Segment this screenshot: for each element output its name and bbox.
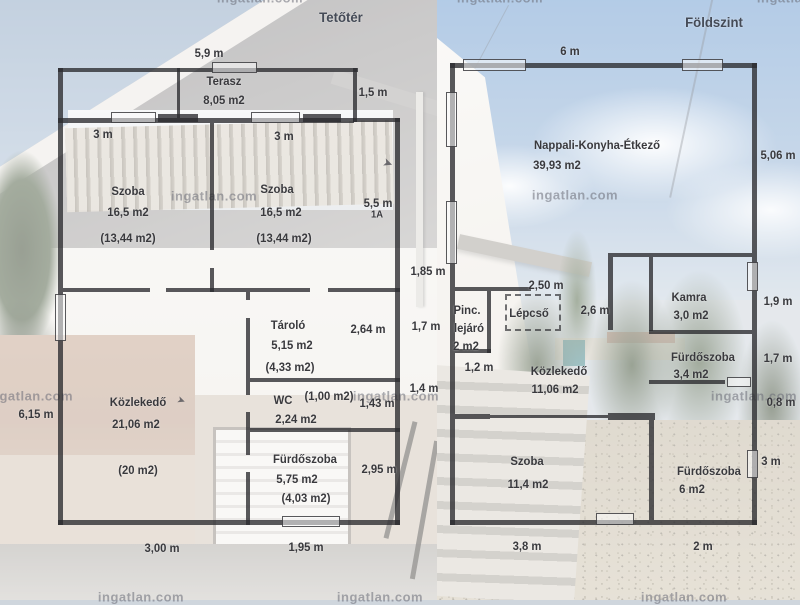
dim-lepcso-right: 2,6 m [581,303,610,317]
dim-bottom-kozlekedo: 3,00 m [144,541,179,555]
window-marker [747,262,758,291]
dim-furdo-height: 2,95 m [361,462,396,476]
room-pinc-line1: Pinc. [454,303,481,317]
dim-left-height: 6,15 m [18,407,53,421]
wall-segment [250,378,400,382]
stair-mark: 1A [371,210,383,221]
room-kamra-name: Kamra [671,290,706,304]
room-pinc-line2: lejáró [454,321,484,335]
room-szoba-left-area: 16,5 m2 [107,205,148,219]
attic-title: Tetőtér [319,9,363,25]
dim-szoba-left-width: 3 m [93,127,112,141]
room-nappali-area: 39,93 m2 [533,158,581,172]
wall-segment [353,68,357,122]
ground-title: Földszint [685,14,743,30]
dim-wc-height: 1,43 m [359,396,394,410]
wall-segment [246,288,310,292]
dim-furdo2-door: 3 m [761,454,780,468]
room-ground-szoba-name: Szoba [510,454,543,468]
wall-segment [210,123,214,250]
dim-left-2: 1,7 m [412,319,441,333]
room-furdoszoba-net: (4,03 m2) [282,491,331,505]
wall-segment [63,288,150,292]
watermark: ingatlan.com [457,0,543,6]
watermark: ingatlan.com [641,590,727,605]
dim-bottom-szoba: 3,8 m [513,539,542,553]
watermark: ingatlan.com [171,189,257,204]
window-marker [446,201,457,264]
wall-segment [455,287,531,291]
dim-left-1: 1,85 m [410,264,445,278]
window-marker [682,59,723,71]
dim-wall-segment: 0,8 m [767,395,796,409]
door-marker [747,450,758,478]
wall-segment [246,318,250,395]
room-kozlekedo-area: 21,06 m2 [112,417,160,431]
dim-bottom-furdo: 1,95 m [288,540,323,554]
wall-segment [166,288,246,292]
watermark: ingatlan.com [337,590,423,605]
room-nappali-name: Nappali-Konyha-Étkező [534,138,660,152]
wall-segment [649,257,653,331]
room-furdoszoba-area: 5,75 m2 [276,472,317,486]
watermark: ingatlan.com [98,590,184,605]
dim-left-3: 1,4 m [410,381,439,395]
room-terasz-name: Terasz [207,74,242,88]
room-tarolo-name: Tároló [271,318,305,332]
watermark: ingatlan.com [757,0,800,6]
dim-bottom-furdo: 2 m [693,539,712,553]
room-tarolo-area: 5,15 m2 [271,338,312,352]
door-lintel-mark [158,114,198,122]
dim-attic-top: 5,9 m [195,46,224,60]
wall-segment [353,118,400,122]
window-marker [446,92,457,147]
wall-segment [455,414,490,419]
wall-segment [649,420,654,520]
dim-furdo1-height: 1,7 m [764,351,793,365]
room-furdoszoba1-name: Fürdőszoba [671,350,735,364]
wall-segment [487,291,491,353]
dim-right-szoba: 5,5 m [364,196,393,210]
room-ground-kozlekedo-name: Közlekedő [531,364,587,378]
room-wc-area: 2,24 m2 [275,412,316,426]
room-wc-net: (1,00 m2) [305,389,354,403]
room-kozlekedo-net: (20 m2) [118,463,158,477]
dim-ground-right: 5,06 m [760,148,795,162]
room-tarolo-net: (4,33 m2) [266,360,315,374]
window-marker [596,513,634,525]
window-marker [111,112,156,123]
dim-ground-top: 6 m [560,44,579,58]
room-ground-szoba-area: 11,4 m2 [508,477,549,491]
wall-segment [177,68,180,118]
room-furdoszoba1-area: 3,4 m2 [673,367,708,381]
room-wc-name: WC [274,393,293,407]
room-szoba-right-area: 16,5 m2 [260,205,301,219]
wall-segment [58,520,400,525]
wall-segment [246,412,250,455]
dim-notch: 1,5 m [359,85,388,99]
room-furdoszoba-name: Fürdőszoba [273,452,337,466]
room-szoba-right-name: Szoba [260,182,293,196]
dim-kamra-height: 1,9 m [764,294,793,308]
room-kamra-area: 3,0 m2 [673,308,708,322]
window-marker [212,62,257,73]
window-marker [463,59,526,71]
wall-segment [613,253,752,257]
room-lepcso-name: Lépcső [509,306,548,320]
wall-segment [246,472,250,525]
room-pinc-area: 2 m2 [453,339,479,353]
window-marker [55,294,66,341]
dim-lepcso-top: 2,50 m [528,278,563,292]
room-ground-kozlekedo-area: 11,06 m2 [531,382,578,396]
room-furdoszoba2-area: 6 m2 [679,482,705,496]
watermark: ingatlan.com [217,0,303,6]
room-kozlekedo-name: Közlekedő [110,395,166,409]
wall-segment [490,415,608,418]
wall-segment [328,288,400,292]
wall-segment [58,68,358,72]
window-marker [251,112,300,123]
room-szoba-left-net: (13,44 m2) [100,231,155,245]
window-marker [282,516,340,527]
wall-segment [250,428,400,432]
dim-tarolo-height: 2,64 m [350,322,385,336]
door-marker [727,377,751,387]
watermark: ingatlan.com [532,188,618,203]
door-lintel-mark [303,114,341,122]
room-szoba-left-name: Szoba [111,184,144,198]
wall-segment [649,330,752,334]
dim-pinc-width: 1,2 m [465,360,494,374]
wall-segment [246,292,250,300]
dim-szoba-right-width: 3 m [274,129,293,143]
wall-segment [608,253,613,330]
room-furdoszoba2-name: Fürdőszoba [677,464,741,478]
wall-segment [608,413,655,420]
listing-image: { "page": { "title_left": "Tetőtér", "ti… [0,0,800,600]
room-szoba-right-net: (13,44 m2) [256,231,311,245]
room-terasz-area: 8,05 m2 [203,93,244,107]
